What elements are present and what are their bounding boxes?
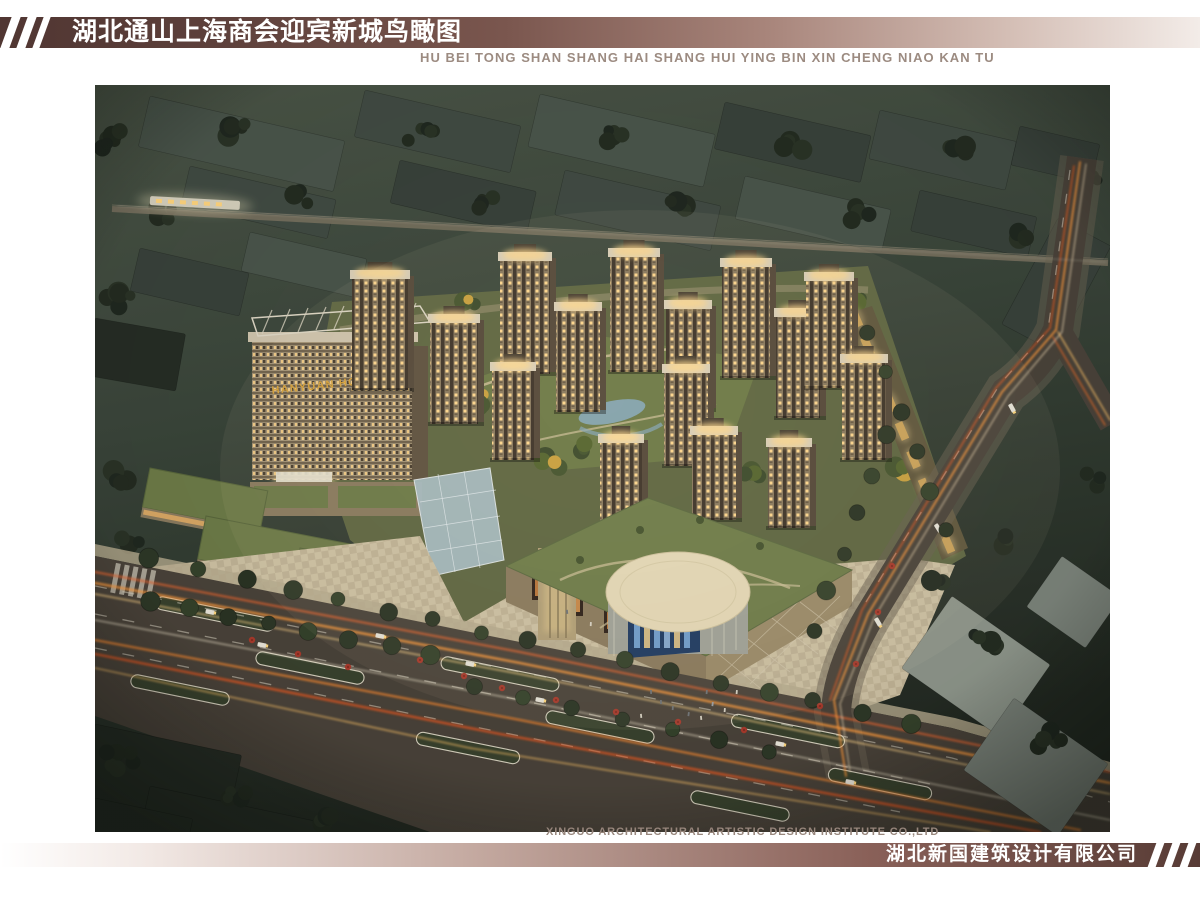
header-band: 湖北通山上海商会迎宾新城鸟瞰图 — [0, 17, 1200, 48]
stripe-icon — [1180, 843, 1197, 867]
aerial-rendering-svg: HANYUAN HOTEL — [95, 85, 1110, 832]
stripe-icon — [1164, 843, 1181, 867]
footer-company-en: XINGUO ARCHITECTURAL ARTISTIC DESIGN INS… — [546, 826, 939, 838]
vignette — [95, 85, 1110, 832]
aerial-rendering-image: HANYUAN HOTEL — [95, 85, 1110, 832]
pinyin-subtitle: HU BEI TONG SHAN SHANG HAI SHANG HUI YIN… — [420, 50, 995, 65]
footer-band: 湖北新国建筑设计有限公司 — [0, 843, 1200, 867]
stripe-icon — [1148, 843, 1165, 867]
page-title: 湖北通山上海商会迎宾新城鸟瞰图 — [72, 17, 462, 48]
stripe-icon — [32, 17, 50, 48]
footer-company-cn: 湖北新国建筑设计有限公司 — [886, 843, 1138, 867]
